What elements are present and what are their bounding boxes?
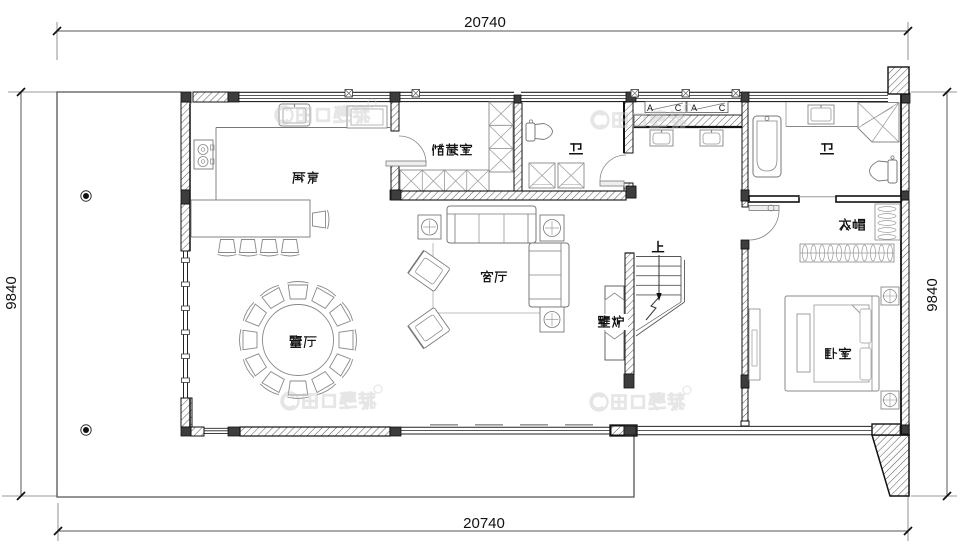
- svg-text:9840: 9840: [924, 278, 941, 311]
- svg-text:20740: 20740: [463, 515, 505, 532]
- svg-text:C: C: [719, 103, 726, 113]
- svg-text:9840: 9840: [3, 276, 20, 309]
- svg-text:20740: 20740: [464, 14, 506, 31]
